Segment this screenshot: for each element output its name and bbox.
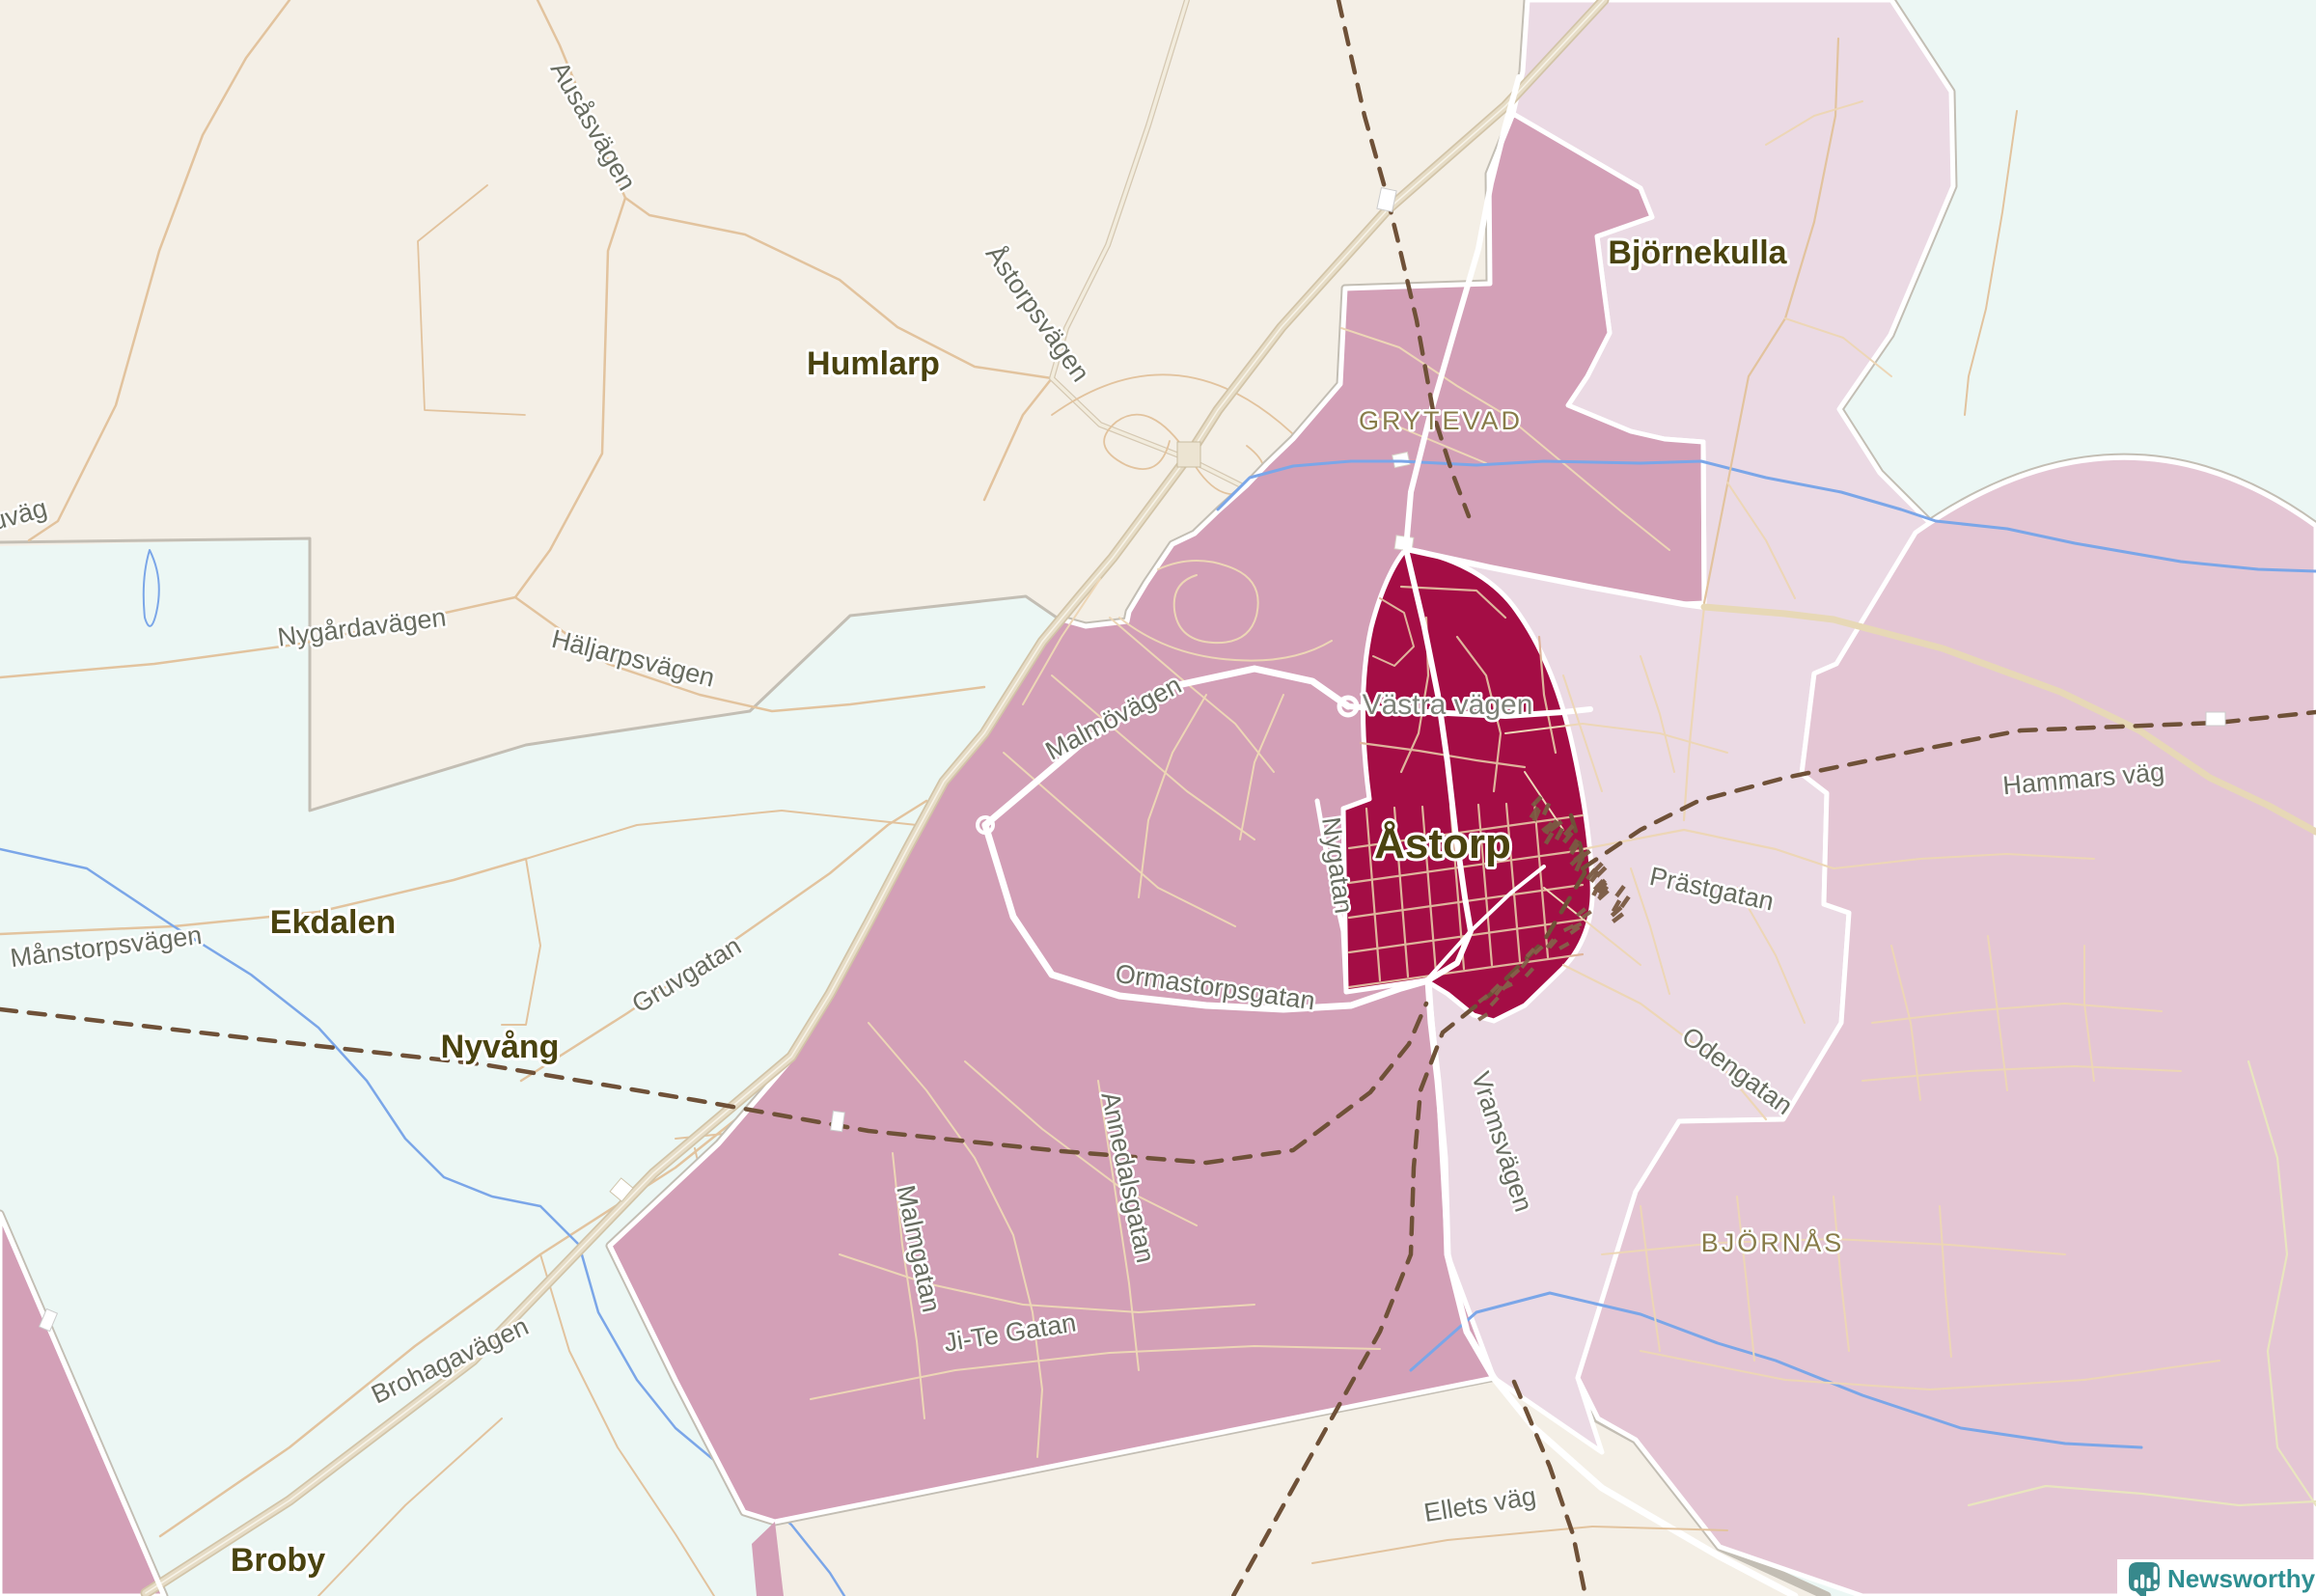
svg-text:Björnekulla: Björnekulla	[1608, 234, 1787, 271]
svg-text:Newsworthy: Newsworthy	[2167, 1564, 2316, 1593]
svg-text:Humlarp: Humlarp	[807, 345, 940, 382]
svg-text:GRYTEVAD: GRYTEVAD	[1359, 406, 1523, 435]
svg-text:Ekdalen: Ekdalen	[270, 904, 396, 941]
svg-text:BJÖRNÅS: BJÖRNÅS	[1701, 1227, 1845, 1257]
svg-text:Nyvång: Nyvång	[441, 1029, 560, 1065]
svg-text:Åstorp: Åstorp	[1374, 820, 1511, 867]
svg-text:Västra vägen: Västra vägen	[1363, 689, 1533, 721]
svg-text:Broby: Broby	[231, 1542, 325, 1579]
